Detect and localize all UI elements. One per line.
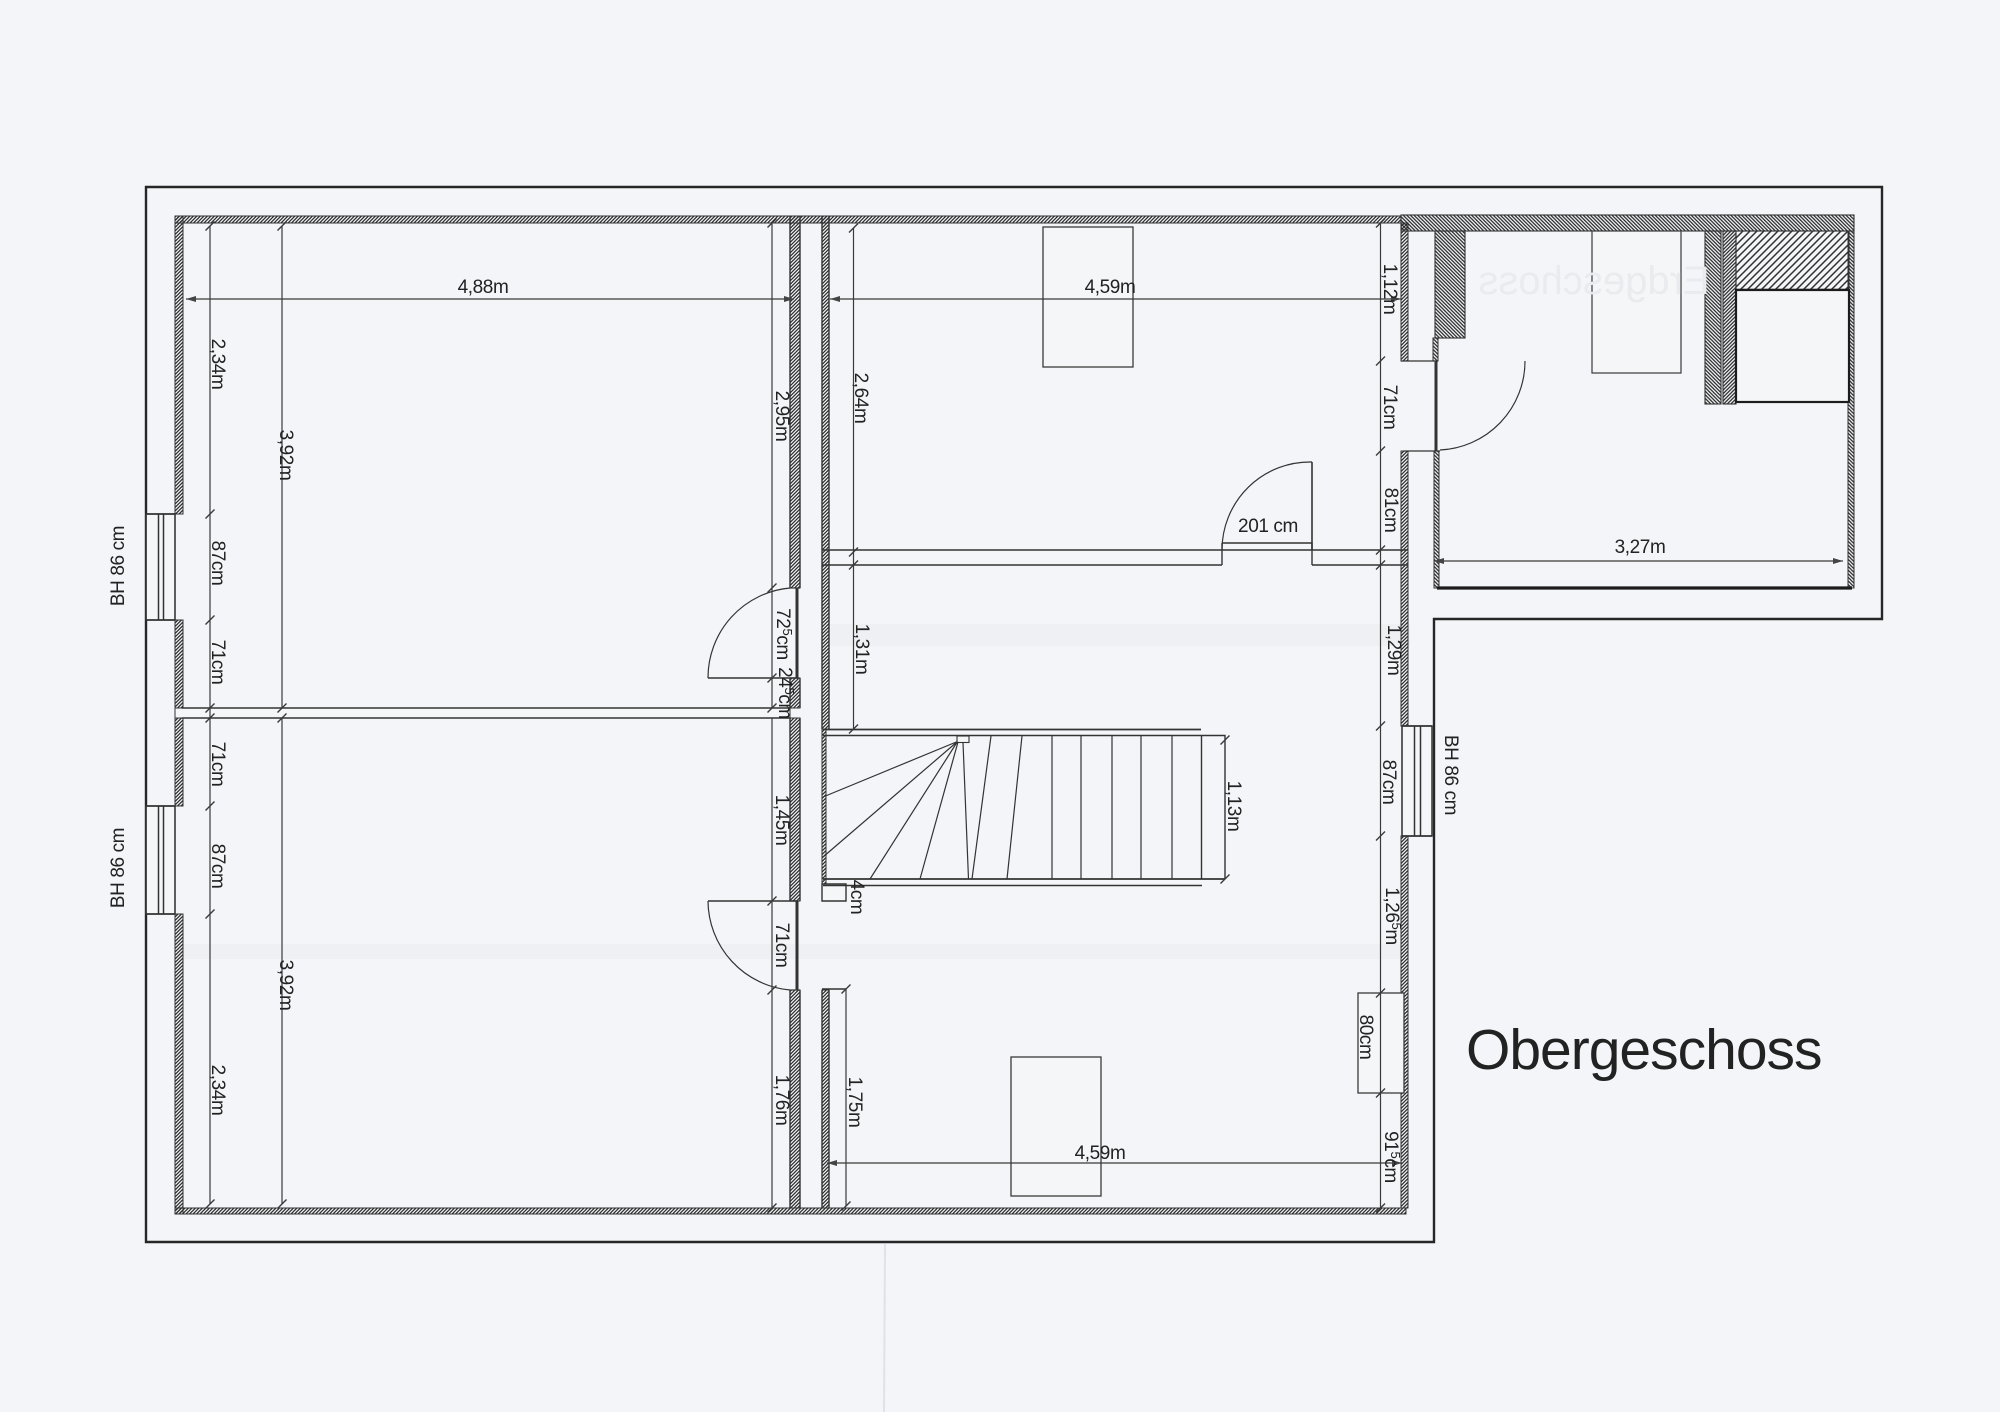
svg-text:2,34m: 2,34m — [207, 1065, 228, 1116]
svg-text:3,27m: 3,27m — [1615, 537, 1666, 558]
svg-text:Obergeschoss: Obergeschoss — [1466, 1018, 1822, 1082]
svg-text:2,34m: 2,34m — [207, 339, 228, 390]
svg-text:1,29m: 1,29m — [1383, 625, 1404, 676]
svg-text:Erdgeschoss: Erdgeschoss — [1478, 259, 1709, 303]
svg-text:80cm: 80cm — [1355, 1015, 1376, 1060]
svg-text:2,64m: 2,64m — [850, 373, 871, 424]
svg-text:BH 86 cm: BH 86 cm — [108, 828, 129, 908]
svg-text:2,95m: 2,95m — [771, 391, 792, 442]
svg-text:87cm: 87cm — [1378, 760, 1399, 805]
svg-text:3,92m: 3,92m — [275, 430, 296, 481]
svg-text:4,59m: 4,59m — [1075, 1143, 1126, 1164]
svg-text:1,13m: 1,13m — [1223, 781, 1244, 832]
svg-text:BH 86 cm: BH 86 cm — [1440, 735, 1461, 815]
svg-text:87cm: 87cm — [207, 541, 228, 586]
svg-text:1,45m: 1,45m — [771, 795, 792, 846]
svg-text:71cm: 71cm — [771, 923, 792, 968]
svg-text:71cm: 71cm — [207, 640, 228, 685]
svg-text:81cm: 81cm — [1380, 488, 1401, 533]
svg-text:1,76m: 1,76m — [771, 1075, 792, 1126]
svg-text:201 cm: 201 cm — [1238, 516, 1298, 537]
svg-text:1,75m: 1,75m — [844, 1077, 865, 1128]
svg-text:4,59m: 4,59m — [1085, 277, 1136, 298]
svg-text:4,88m: 4,88m — [458, 277, 509, 298]
svg-text:71cm: 71cm — [207, 742, 228, 787]
svg-text:1,265m: 1,265m — [1381, 887, 1404, 945]
svg-text:87cm: 87cm — [207, 844, 228, 889]
svg-text:BH 86 cm: BH 86 cm — [108, 526, 129, 606]
svg-text:1,12m: 1,12m — [1379, 264, 1400, 315]
svg-text:4cm: 4cm — [846, 880, 867, 915]
svg-text:3,92m: 3,92m — [275, 960, 296, 1011]
svg-text:71cm: 71cm — [1379, 385, 1400, 430]
svg-text:1,31m: 1,31m — [851, 624, 872, 675]
